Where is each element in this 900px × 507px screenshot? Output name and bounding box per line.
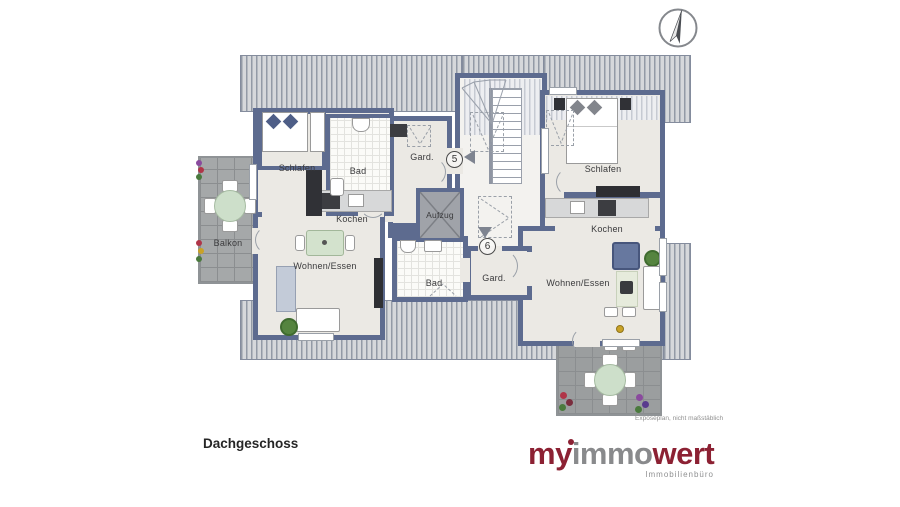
nightstand — [620, 98, 631, 110]
door-swing-arc — [556, 168, 584, 196]
balcony-table — [214, 190, 246, 222]
flower-box — [566, 399, 573, 406]
corridor-shelf-5 — [390, 124, 407, 137]
roof-slope-marker — [546, 110, 574, 146]
flower-box — [196, 256, 202, 262]
kitchen-6-stove — [598, 200, 616, 216]
room-label-schlafen-5: Schlafen — [279, 163, 316, 173]
dining-chair — [295, 235, 305, 251]
entrance-door-marker — [478, 227, 492, 238]
terrace-table — [594, 364, 626, 396]
brand-part-wert: wert — [653, 436, 715, 471]
toilet-6 — [400, 240, 416, 253]
window — [659, 282, 667, 312]
room-label-wohnen-5: Wohnen/Essen — [293, 261, 356, 271]
armchair-6 — [612, 242, 640, 270]
table-decor — [322, 240, 327, 245]
kitchen-6-sink — [570, 201, 585, 214]
opening-hall6-bath — [460, 258, 470, 282]
room-label-wohnen-6: Wohnen/Essen — [546, 278, 609, 288]
tv-board-5 — [374, 258, 383, 308]
floor-plan-page: Schlafen Bad Kochen Gard. Wohnen/Essen B… — [0, 0, 900, 507]
unit-6-badge: 6 — [479, 238, 496, 255]
plant-icon — [280, 318, 298, 336]
room-label-bad-6: Bad — [426, 278, 443, 288]
unit-5-badge: 5 — [446, 151, 463, 168]
door-swing-arc — [418, 158, 446, 186]
window — [541, 128, 549, 174]
window — [549, 87, 577, 95]
table-bowl — [616, 325, 624, 333]
reading-chair-6 — [620, 281, 633, 294]
brand-part-immo: immo — [572, 436, 653, 471]
room-label-gard-6: Gard. — [482, 273, 506, 283]
room-label-balkon: Balkon — [214, 238, 243, 248]
roof-area-top-left — [240, 55, 462, 112]
north-arrow-icon — [655, 5, 701, 51]
roof-area-right — [663, 243, 691, 360]
brand-i-dot-icon — [568, 439, 574, 445]
entrance-door-marker — [464, 150, 475, 164]
sofa-5 — [296, 308, 340, 332]
window — [298, 333, 334, 341]
roof-slope-marker — [470, 112, 504, 152]
opening-hall6-living — [521, 252, 537, 286]
cabinet-5 — [310, 112, 325, 152]
window — [659, 238, 667, 276]
corner-sofa-5 — [276, 266, 296, 312]
nightstand — [554, 98, 565, 110]
flower-box — [559, 404, 566, 411]
flower-box — [560, 392, 567, 399]
brand-wordmark: myimmowert — [528, 438, 714, 469]
room-label-schlafen-6: Schlafen — [585, 164, 622, 174]
kitchen-6-counter — [545, 198, 649, 218]
room-label-aufzug: Aufzug — [426, 210, 454, 220]
flower-box — [642, 401, 649, 408]
flower-box — [196, 240, 202, 246]
flower-box — [196, 160, 202, 166]
flower-box — [636, 394, 643, 401]
dresser-6 — [596, 186, 640, 197]
room-label-bad-5: Bad — [350, 166, 367, 176]
brand-subtitle: Immobilienbüro — [528, 470, 714, 479]
sink-5 — [330, 178, 344, 196]
room-label-kochen-6: Kochen — [591, 224, 623, 234]
dining-chair — [345, 235, 355, 251]
flower-box — [198, 167, 204, 173]
roof-slope-marker — [407, 125, 431, 147]
wardrobe-5 — [306, 170, 322, 216]
sink-6 — [424, 240, 442, 252]
room-label-gard-5: Gard. — [410, 152, 434, 162]
toilet-5 — [352, 118, 370, 132]
room-label-kochen-5: Kochen — [336, 214, 368, 224]
flower-box — [635, 406, 642, 413]
brand-part-my: my — [528, 436, 572, 471]
floor-title: Dachgeschoss — [203, 436, 298, 451]
flower-box — [196, 174, 202, 180]
window — [249, 164, 257, 200]
brand-logo: myimmowert Immobilienbüro — [528, 438, 714, 479]
door-swing-arc — [255, 226, 283, 254]
window — [602, 339, 640, 347]
plan-caption: Exposéplan, nicht maßstäblich — [635, 415, 723, 422]
flower-box — [198, 248, 204, 254]
door-swing-arc — [572, 328, 598, 354]
